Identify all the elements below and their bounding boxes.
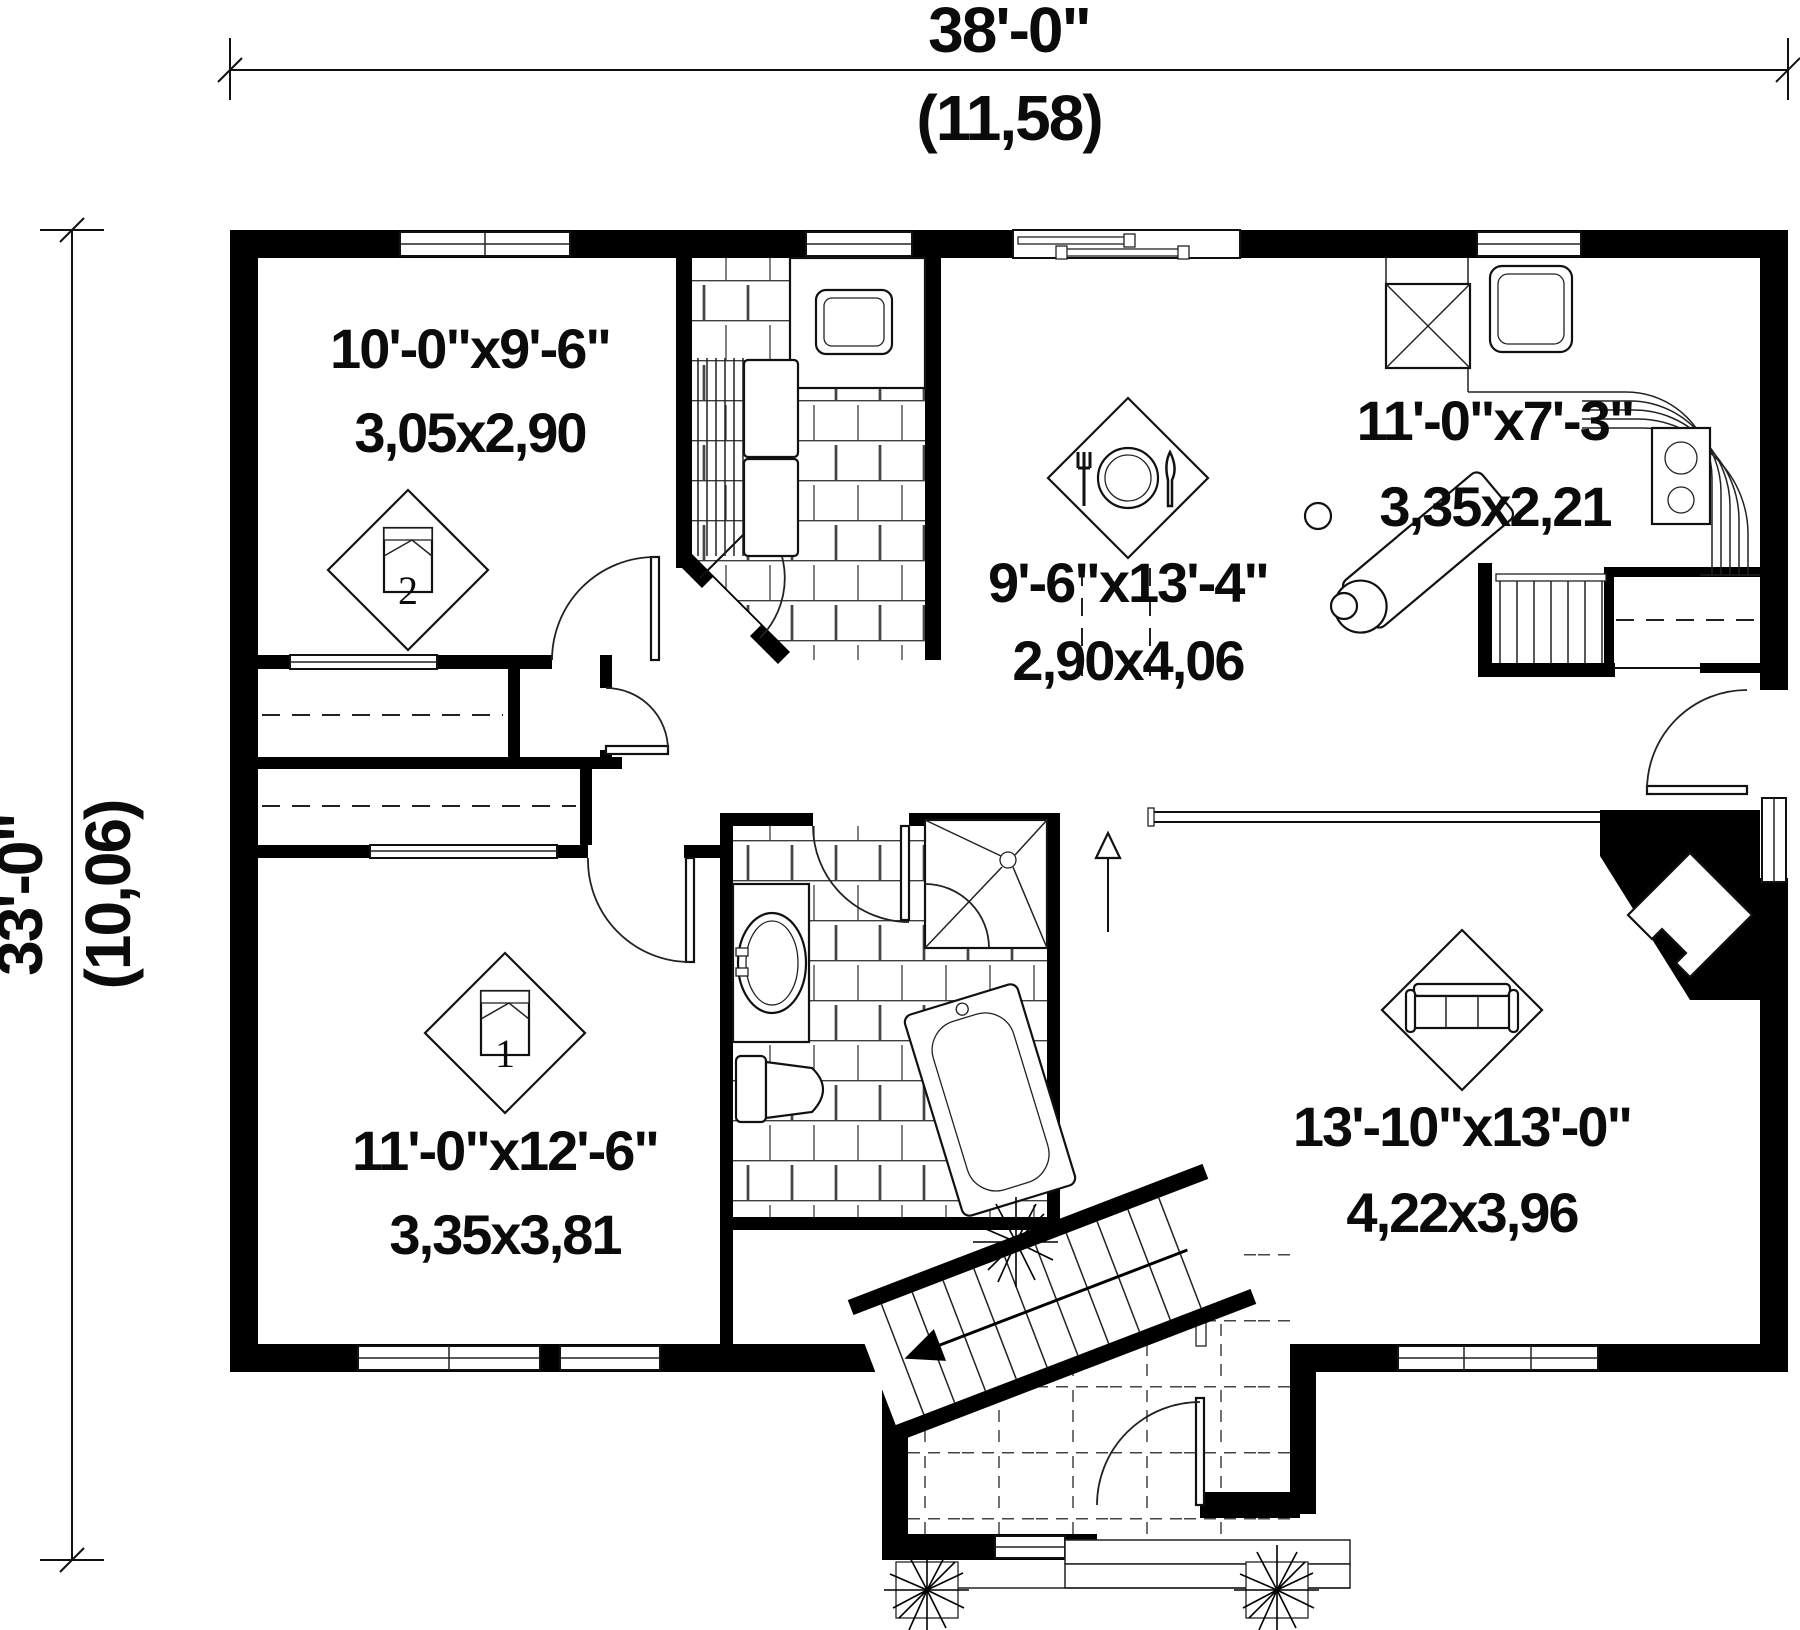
bedroom2-window — [400, 232, 570, 256]
burner — [1668, 487, 1694, 513]
bedroom2-number: 2 — [398, 568, 418, 613]
plate-icon — [1098, 448, 1158, 508]
wall — [720, 1230, 733, 1344]
side-entry-sidelight-window — [1762, 798, 1786, 882]
wall — [1760, 878, 1788, 1372]
railing — [1148, 808, 1600, 826]
laundry-sink-basin — [824, 298, 884, 346]
linen-closet-door — [606, 688, 668, 754]
wall — [1478, 563, 1492, 677]
dimension-width-metric: (11,58) — [916, 82, 1101, 154]
wall — [580, 769, 592, 845]
vanity-sink — [733, 884, 809, 1042]
bedroom1-window-single — [560, 1346, 660, 1370]
living-size-metric: 4,22x3,96 — [1346, 1181, 1578, 1244]
stair-handrail — [1496, 574, 1606, 581]
dimension-height-imperial: 33'-0" — [0, 814, 56, 976]
dining-symbol — [1048, 398, 1208, 558]
floor-plan-drawing: 38'-0" (11,58) 33'-0" (10,06) — [0, 0, 1800, 1630]
refrigerator — [1386, 284, 1470, 368]
bedroom1-door — [588, 858, 694, 962]
side-entry-door — [1647, 690, 1747, 794]
dryer — [744, 459, 798, 556]
bedroom2-size-imperial: 10'-0"x9'-6" — [330, 317, 610, 380]
shower-drain — [1000, 852, 1016, 868]
dimension-height-metric: (10,06) — [72, 801, 144, 990]
kitchen-size-metric: 3,35x2,21 — [1379, 475, 1611, 538]
kitchen-sink — [1490, 266, 1572, 352]
wall — [1700, 663, 1760, 673]
room-bedroom1: 1 11'-0"x12'-6" 3,35x3,81 — [352, 953, 658, 1266]
patio-sliding-door — [1013, 230, 1240, 259]
room-bedroom2: 10'-0"x9'-6" 3,05x2,90 2 — [328, 317, 610, 650]
wall — [720, 813, 813, 826]
faucet — [736, 948, 748, 956]
dimension-left: 33'-0" (10,06) — [0, 218, 144, 1572]
wall — [1600, 810, 1760, 836]
wall — [230, 230, 258, 1372]
wall — [1478, 663, 1615, 677]
bedroom2-symbol: 2 — [328, 490, 488, 650]
laundry-window — [806, 232, 912, 256]
bedroom1-symbol: 1 — [425, 953, 585, 1113]
wall — [600, 655, 612, 688]
bedroom1-size-imperial: 11'-0"x12'-6" — [352, 1119, 658, 1182]
dining-size-imperial: 9'-6"x13'-4" — [988, 551, 1268, 614]
kitchen-size-imperial: 11'-0"x7'-3" — [1357, 389, 1634, 452]
corner-shower — [925, 820, 1047, 948]
washer — [744, 360, 798, 457]
living-window — [1398, 1346, 1598, 1370]
bedroom1-closet-sliding-door — [370, 845, 557, 858]
stove — [1652, 428, 1710, 524]
kitchen-stairs — [1496, 574, 1606, 663]
porch-wall — [1200, 1492, 1300, 1518]
stool — [1305, 503, 1331, 529]
sofa-icon — [1406, 984, 1518, 1032]
dimension-top: 38'-0" (11,58) — [218, 0, 1800, 154]
floor-plan-canvas: 38'-0" (11,58) 33'-0" (10,06) — [0, 0, 1800, 1630]
living-size-imperial: 13'-10"x13'-0" — [1293, 1095, 1631, 1158]
wall — [230, 1344, 875, 1372]
room-living: 13'-10"x13'-0" 4,22x3,96 — [1293, 930, 1631, 1244]
wall — [1760, 230, 1788, 690]
wall — [1604, 567, 1614, 667]
dimension-width-imperial: 38'-0" — [928, 0, 1090, 66]
porch-wall — [1290, 1344, 1316, 1514]
living-symbol — [1382, 930, 1542, 1090]
bedroom1-size-metric: 3,35x3,81 — [389, 1203, 621, 1266]
kitchen-area — [1305, 258, 1760, 663]
up-arrow-icon — [1096, 833, 1120, 932]
wall — [925, 258, 941, 660]
corner-fireplace — [1600, 836, 1760, 1000]
wall — [720, 826, 733, 1230]
burner — [1665, 442, 1697, 474]
dining-size-metric: 2,90x4,06 — [1012, 629, 1244, 692]
bedroom2-door — [552, 557, 659, 660]
porch-window — [995, 1536, 1065, 1558]
room-dining: 9'-6"x13'-4" 2,90x4,06 — [988, 398, 1268, 692]
bedroom1-window-double — [358, 1346, 540, 1370]
wall — [676, 258, 692, 568]
bedroom1-number: 1 — [495, 1031, 515, 1076]
wall — [258, 757, 622, 769]
room-kitchen: 11'-0"x7'-3" 3,35x2,21 — [1357, 389, 1634, 538]
stool — [1331, 593, 1357, 619]
wall — [684, 845, 720, 858]
faucet — [736, 968, 748, 976]
wall — [508, 655, 520, 769]
bedroom2-size-metric: 3,05x2,90 — [354, 401, 585, 464]
bedroom2-closet-sliding-door — [290, 655, 437, 669]
kitchen-window — [1477, 232, 1581, 256]
